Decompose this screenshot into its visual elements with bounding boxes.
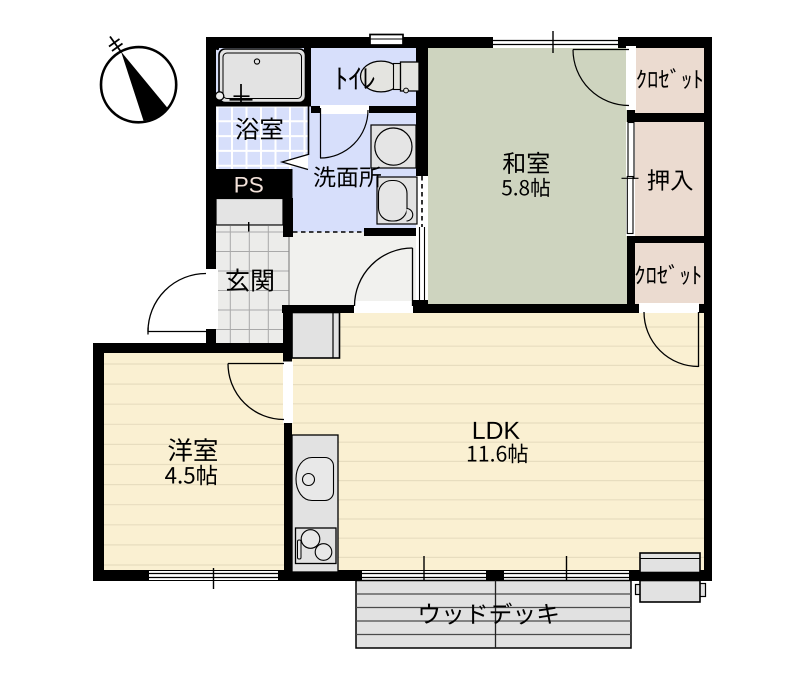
svg-text:PS: PS	[234, 172, 264, 197]
